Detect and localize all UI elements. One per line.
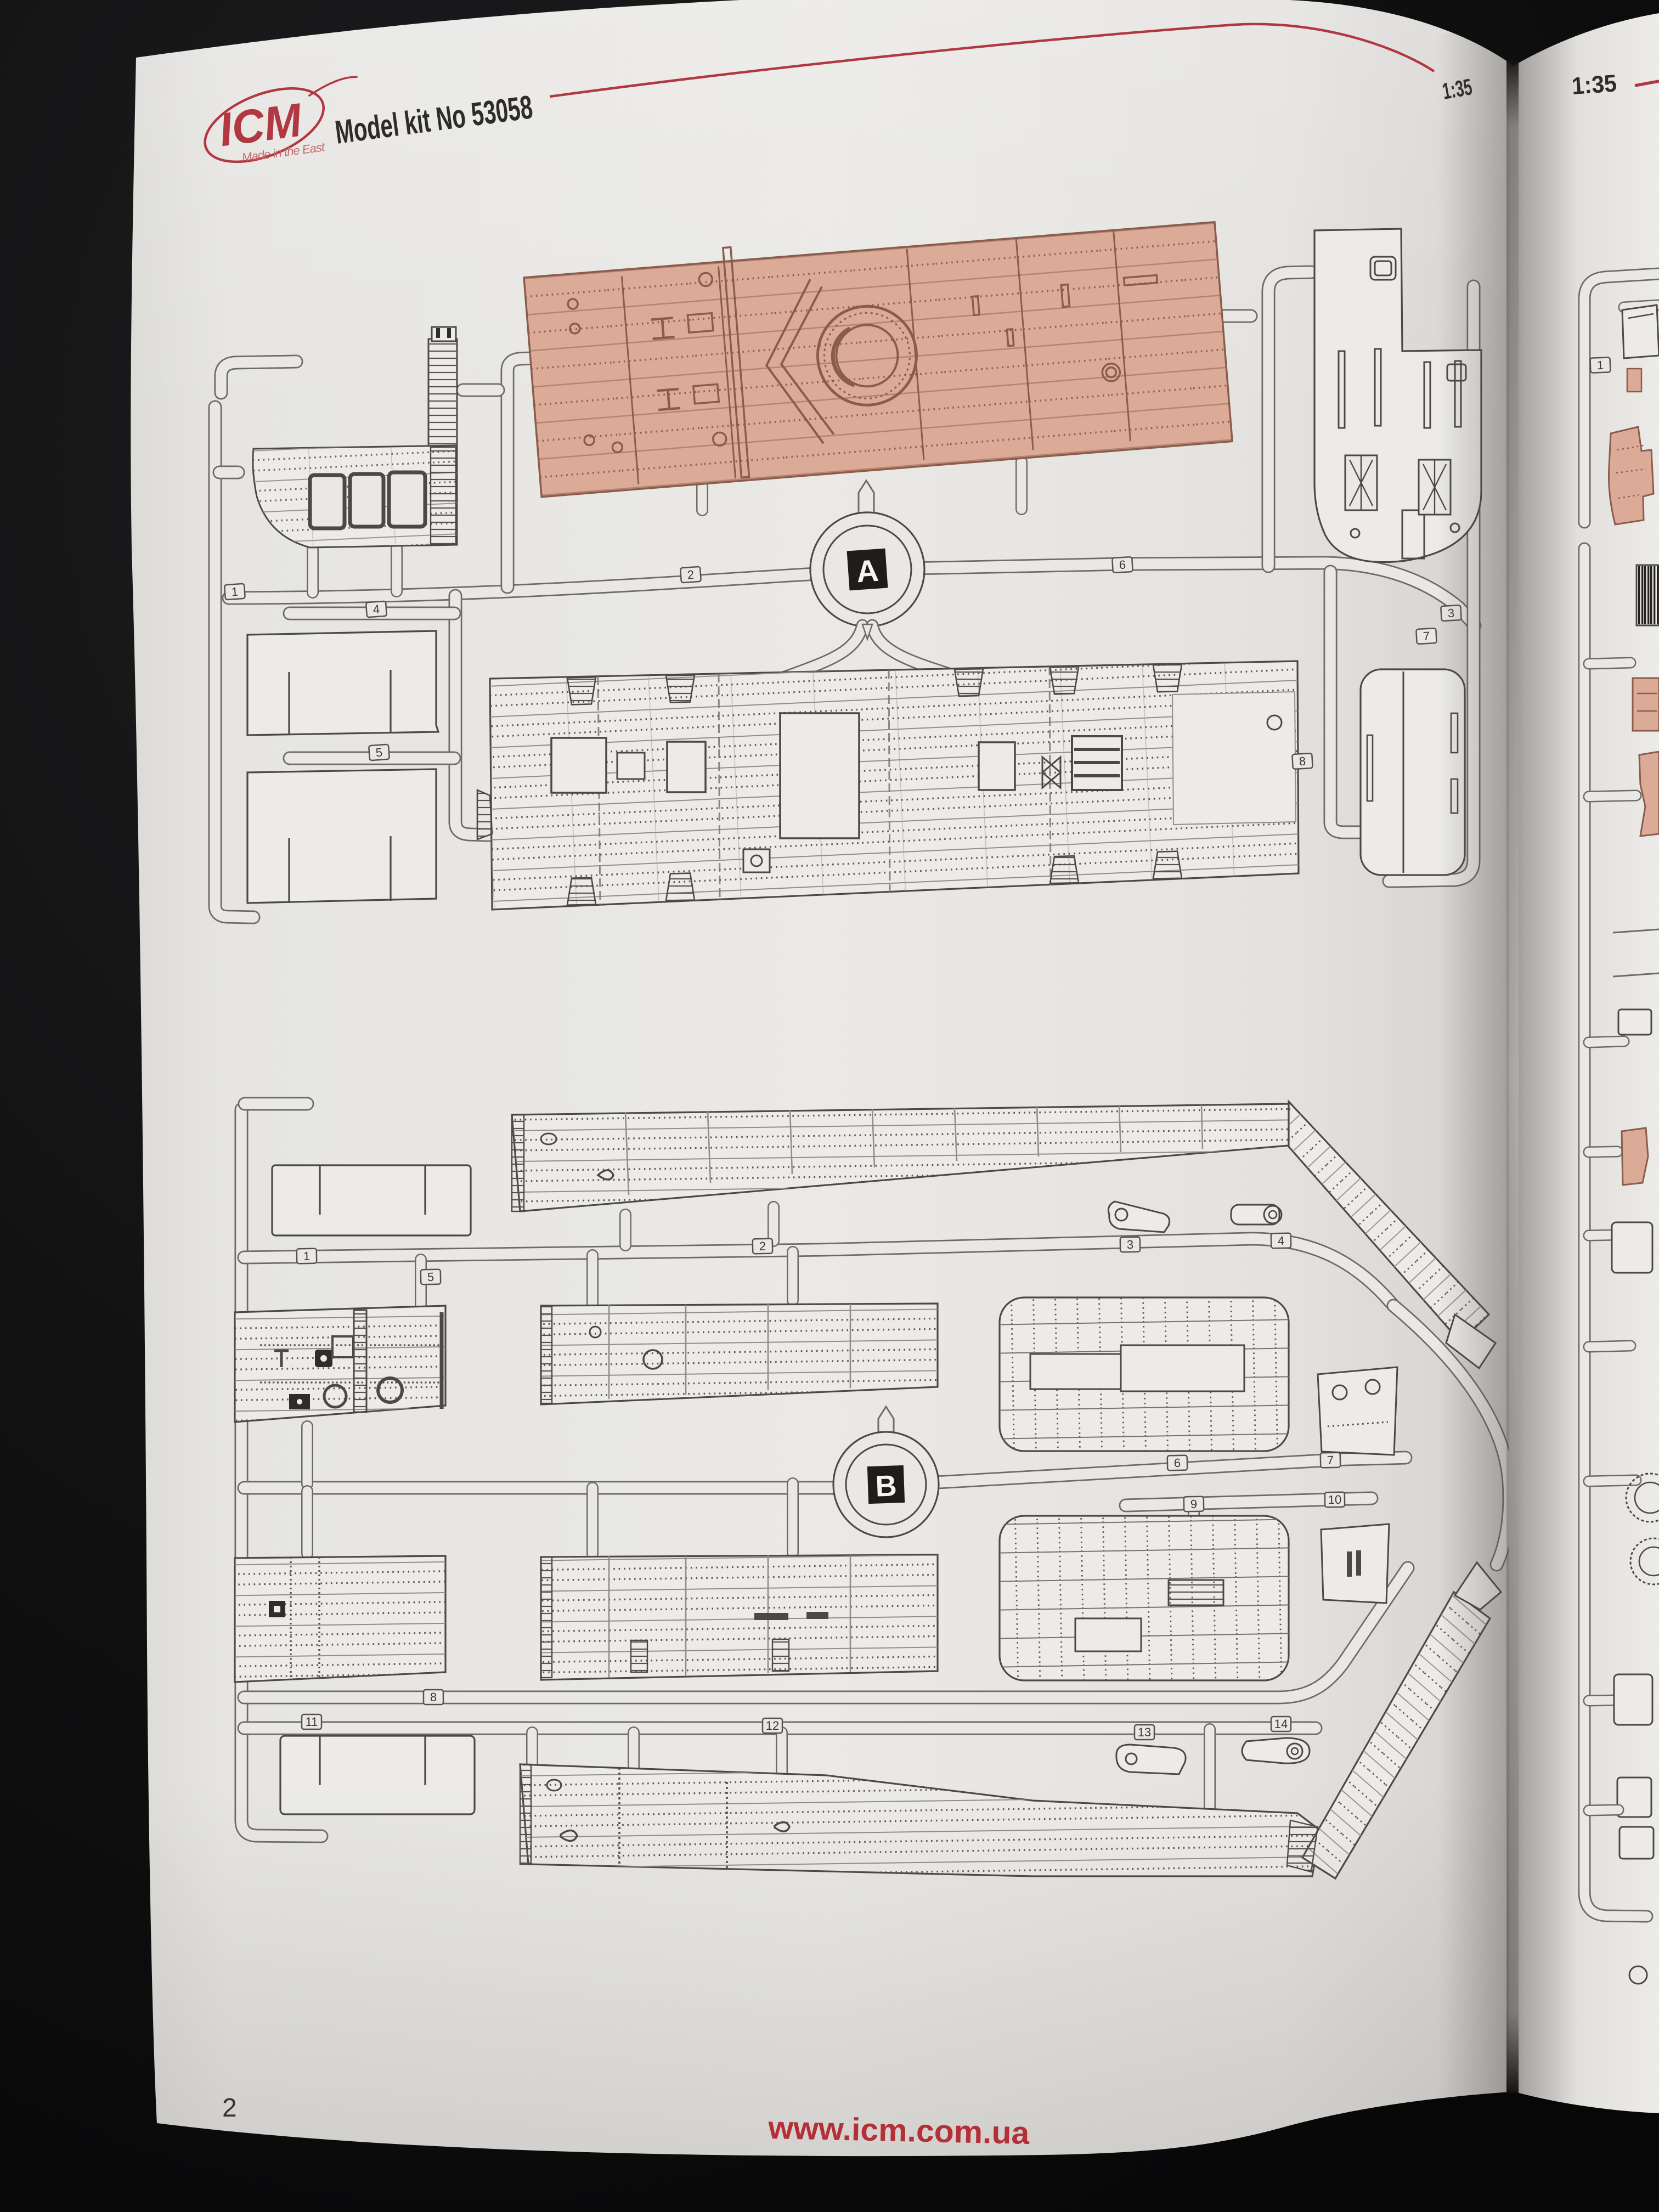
svg-text:1: 1: [231, 585, 239, 599]
svg-text:11: 11: [306, 1715, 318, 1729]
svg-text:4: 4: [373, 602, 380, 617]
svg-text:13: 13: [1138, 1725, 1151, 1739]
svg-text:1: 1: [1596, 358, 1604, 372]
svg-text:6: 6: [1174, 1456, 1181, 1470]
svg-text:6: 6: [1119, 558, 1126, 572]
svg-text:5: 5: [427, 1270, 435, 1284]
svg-text:B: B: [875, 1469, 898, 1503]
svg-text:7: 7: [1327, 1453, 1334, 1467]
svg-text:10: 10: [1328, 1493, 1342, 1506]
svg-text:1: 1: [303, 1249, 311, 1263]
svg-text:7: 7: [1423, 629, 1430, 644]
svg-text:2: 2: [687, 568, 695, 582]
svg-text:2: 2: [759, 1239, 766, 1253]
svg-text:1:35: 1:35: [1571, 70, 1617, 100]
svg-text:8: 8: [1299, 754, 1306, 769]
svg-text:14: 14: [1274, 1717, 1288, 1731]
svg-text:5: 5: [375, 746, 383, 760]
svg-text:A: A: [855, 553, 880, 589]
svg-text:12: 12: [766, 1719, 779, 1733]
svg-text:9: 9: [1190, 1497, 1198, 1511]
svg-text:8: 8: [430, 1690, 437, 1704]
svg-text:4: 4: [1278, 1234, 1285, 1248]
svg-text:3: 3: [1127, 1238, 1134, 1251]
